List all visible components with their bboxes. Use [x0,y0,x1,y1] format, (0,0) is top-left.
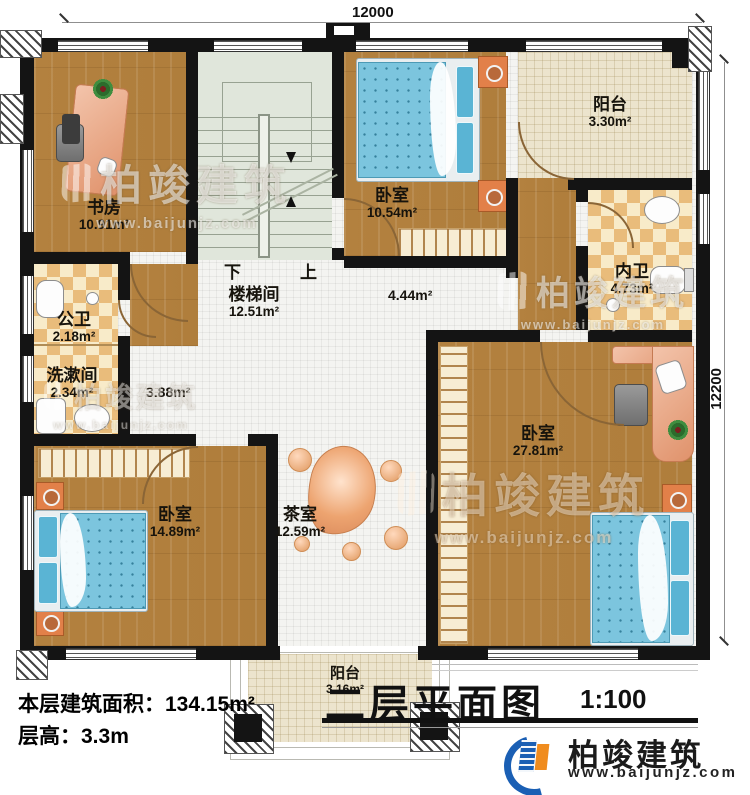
top-dimension-value: 12000 [352,4,394,21]
window [698,58,710,170]
brand-logo-icon [502,728,560,786]
corner-hatch [16,650,48,680]
wall [426,342,438,646]
wall [506,178,518,190]
pillow [670,520,690,576]
hall-small-area: 3.88m² [146,384,190,400]
hall-strip-floor [518,178,576,330]
bedroom-top-wardrobe [398,228,508,258]
wall [20,252,130,264]
inner-bath-toilet [650,266,686,294]
nightstand [662,484,692,514]
wall [344,256,506,268]
window [698,194,710,244]
window [22,150,34,232]
stair-down-label: 下 [224,258,241,283]
window [214,40,302,52]
wall [266,446,278,646]
tea-stone [380,460,402,482]
wall [426,330,540,342]
tea-stone [288,448,312,472]
window [526,40,662,52]
stair-arrow [286,196,296,207]
pillow [456,122,474,174]
bath-divider [34,344,118,346]
bedroom-big-label: 卧室 27.81m² [513,424,563,458]
pillow [670,580,690,636]
wall [576,190,588,202]
corner-hatch [0,30,42,58]
balcony-top-label: 阳台 3.30m² [589,95,632,129]
inner-bath-label: 内卫 4.73m² [611,262,654,296]
study-label: 书房 10.91m² [79,198,129,232]
wall [576,246,588,330]
porch-column-core [234,714,262,742]
eave-line [430,670,698,671]
window [22,496,34,570]
study-monitor [62,114,80,144]
window [488,648,638,660]
pillow [38,562,58,604]
washing-machine [36,398,66,434]
nightstand [478,180,508,212]
wall [186,52,198,264]
top-dimension-line [62,22,702,23]
wall [20,434,196,446]
window [66,648,196,660]
window [58,40,148,52]
floor-drain [86,292,99,305]
stair-arrow [286,152,296,163]
nightstand [478,56,508,88]
stairwell-label: 楼梯间 12.51m² [229,285,280,319]
toilet-tank [684,268,694,292]
study-plant [92,78,114,100]
corner-hatch [688,26,712,72]
wall [568,178,692,190]
window [356,40,468,52]
stair-up-label: 上 [300,258,317,283]
floor-height-text: 层高：3.3m [18,720,129,750]
pillow [38,516,58,558]
public-bath-label: 公卫 2.18m² [53,310,96,344]
tea-stone [342,542,361,561]
chimney-inner [334,26,354,35]
wall [118,336,130,434]
bedroom-top-label: 卧室 10.54m² [367,186,417,220]
tea-stone [384,526,408,550]
shower-head [606,298,620,312]
washroom-sink [74,404,110,432]
hall-mid-area: 4.44m² [388,287,432,303]
floor-area-text: 本层建筑面积：134.15m² [18,688,255,718]
stair-rail [258,114,270,258]
window [22,356,34,402]
washroom-label: 洗漱间 2.34m² [47,366,98,400]
wall [332,248,344,260]
bedroom-big-wardrobe [440,346,468,644]
corner-hatch [0,94,24,144]
right-dimension-value: 12200 [708,368,725,410]
plan-scale: 1:100 [580,684,647,715]
wall [506,178,518,278]
right-dimension-line [724,62,725,642]
floor-plan-canvas: 12000 12200 [0,0,750,795]
wall [588,330,692,342]
brand-url: www.baijunjz.com [568,764,737,781]
wall [118,264,130,300]
tea-room-label: 茶室 12.59m² [275,505,325,539]
pillow [456,66,474,118]
eave-line [430,664,698,665]
nightstand [36,482,64,510]
inner-bath-sink [644,196,680,224]
bedroom-big-plant [668,420,688,440]
window [22,276,34,334]
wall [248,434,278,446]
bedroom-left-label: 卧室 14.89m² [150,505,200,539]
title-underline [322,718,698,723]
nightstand [36,608,64,636]
